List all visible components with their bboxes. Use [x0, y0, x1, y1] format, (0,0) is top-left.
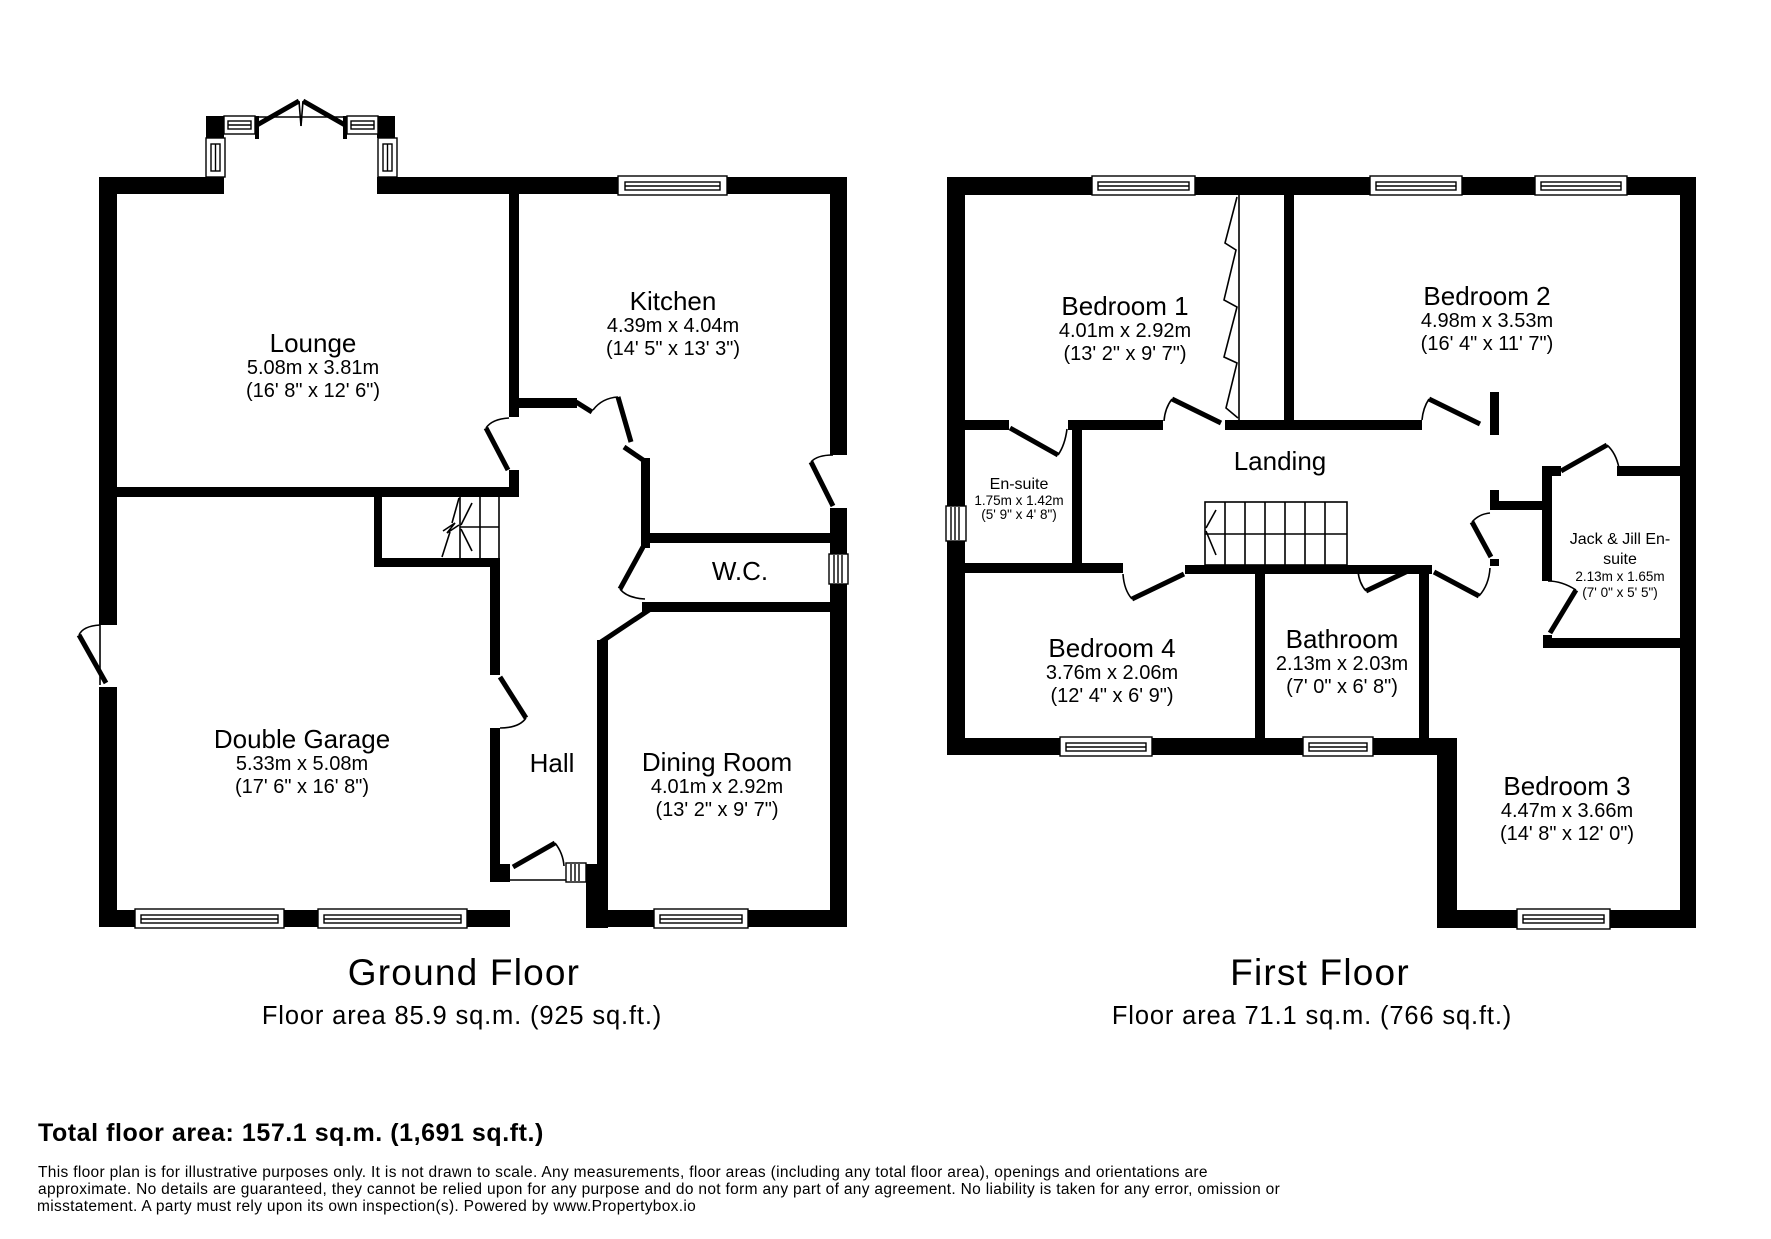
svg-text:(13' 2" x 9' 7"): (13' 2" x 9' 7") — [1064, 343, 1187, 365]
svg-text:(12' 4" x 6' 9"): (12' 4" x 6' 9") — [1051, 685, 1174, 707]
svg-text:This floor plan is for illustr: This floor plan is for illustrative purp… — [38, 1164, 1208, 1181]
svg-text:Bedroom 1: Bedroom 1 — [1061, 291, 1188, 321]
svg-text:Floor area 85.9 sq.m. (925 sq.: Floor area 85.9 sq.m. (925 sq.ft.) — [262, 1002, 662, 1030]
svg-text:Bathroom: Bathroom — [1286, 624, 1399, 654]
svg-text:(16' 8" x 12' 6"): (16' 8" x 12' 6") — [246, 380, 380, 402]
svg-text:4.47m x 3.66m: 4.47m x 3.66m — [1501, 800, 1633, 822]
svg-text:suite: suite — [1603, 551, 1637, 568]
svg-text:Lounge: Lounge — [270, 328, 357, 358]
svg-text:W.C.: W.C. — [712, 556, 768, 586]
svg-text:1.75m x 1.42m: 1.75m x 1.42m — [974, 493, 1063, 508]
svg-text:Bedroom 2: Bedroom 2 — [1423, 281, 1550, 311]
svg-text:(14' 5" x 13' 3"): (14' 5" x 13' 3") — [606, 338, 740, 360]
svg-text:approximate. No details are gu: approximate. No details are guaranteed, … — [38, 1181, 1280, 1198]
svg-text:(5' 9" x 4' 8"): (5' 9" x 4' 8") — [981, 507, 1057, 522]
svg-text:5.08m x 3.81m: 5.08m x 3.81m — [247, 357, 379, 379]
svg-text:Double Garage: Double Garage — [214, 724, 390, 754]
svg-text:4.39m x 4.04m: 4.39m x 4.04m — [607, 315, 739, 337]
svg-text:Kitchen: Kitchen — [630, 286, 717, 316]
svg-text:Total floor area: 157.1 sq.m.: Total floor area: 157.1 sq.m. (1,691 sq.… — [38, 1119, 544, 1147]
svg-text:(16' 4" x 11' 7"): (16' 4" x 11' 7") — [1421, 333, 1554, 355]
svg-text:2.13m x 1.65m: 2.13m x 1.65m — [1575, 569, 1664, 584]
svg-text:Ground Floor: Ground Floor — [348, 952, 580, 993]
svg-text:5.33m x 5.08m: 5.33m x 5.08m — [236, 753, 368, 775]
svg-text:Jack & Jill En-: Jack & Jill En- — [1570, 531, 1670, 548]
svg-text:Bedroom 4: Bedroom 4 — [1048, 633, 1175, 663]
svg-text:First Floor: First Floor — [1230, 952, 1410, 993]
svg-text:4.01m x 2.92m: 4.01m x 2.92m — [1059, 320, 1191, 342]
svg-text:Floor area 71.1 sq.m. (766 sq.: Floor area 71.1 sq.m. (766 sq.ft.) — [1112, 1002, 1512, 1030]
svg-text:Dining Room: Dining Room — [642, 747, 792, 777]
svg-text:misstatement. A party must rel: misstatement. A party must rely upon its… — [37, 1198, 696, 1215]
svg-text:4.01m x 2.92m: 4.01m x 2.92m — [651, 776, 783, 798]
svg-text:(17' 6" x 16' 8"): (17' 6" x 16' 8") — [235, 776, 369, 798]
svg-text:4.98m x 3.53m: 4.98m x 3.53m — [1421, 310, 1553, 332]
svg-text:(13' 2" x 9' 7"): (13' 2" x 9' 7") — [656, 799, 779, 821]
svg-text:En-suite: En-suite — [990, 476, 1049, 493]
svg-text:Landing: Landing — [1234, 446, 1327, 476]
svg-text:2.13m x 2.03m: 2.13m x 2.03m — [1276, 653, 1408, 675]
svg-text:Hall: Hall — [530, 748, 575, 778]
svg-text:(14' 8" x 12' 0"): (14' 8" x 12' 0") — [1500, 823, 1634, 845]
svg-text:3.76m x 2.06m: 3.76m x 2.06m — [1046, 662, 1178, 684]
svg-text:Bedroom 3: Bedroom 3 — [1503, 771, 1630, 801]
svg-text:(7' 0" x 6' 8"): (7' 0" x 6' 8") — [1286, 676, 1398, 698]
svg-text:(7' 0" x 5' 5"): (7' 0" x 5' 5") — [1582, 585, 1658, 600]
